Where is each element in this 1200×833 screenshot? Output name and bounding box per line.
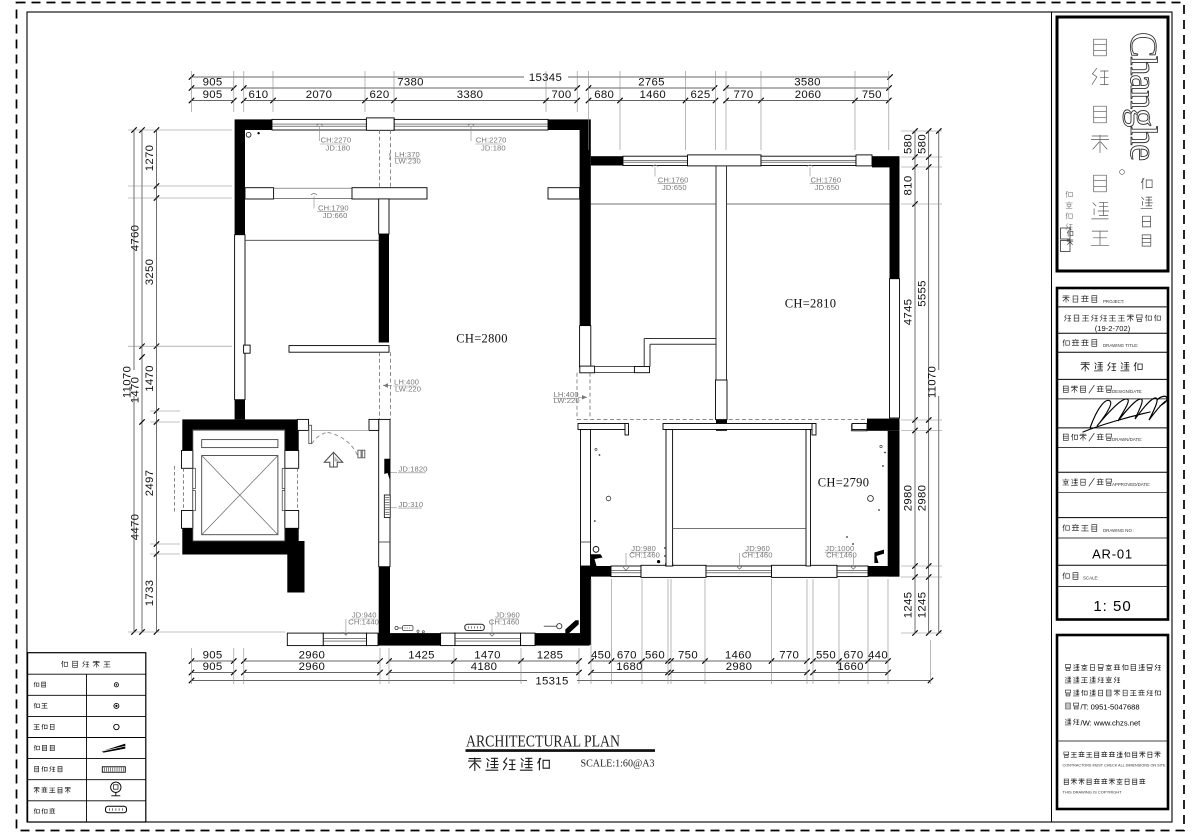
svg-text:1245: 1245 bbox=[916, 592, 928, 619]
svg-text:4180: 4180 bbox=[471, 661, 498, 673]
svg-text:CH:1460: CH:1460 bbox=[742, 551, 773, 560]
svg-text:1245: 1245 bbox=[903, 592, 915, 619]
svg-text:680: 680 bbox=[594, 89, 614, 101]
svg-text:5555: 5555 bbox=[916, 280, 928, 307]
svg-text:440: 440 bbox=[868, 649, 888, 661]
svg-text:3380: 3380 bbox=[457, 89, 484, 101]
svg-text:1733: 1733 bbox=[144, 580, 156, 607]
svg-text:1285: 1285 bbox=[537, 649, 564, 661]
svg-text:2960: 2960 bbox=[299, 649, 326, 661]
svg-text:1460: 1460 bbox=[725, 649, 752, 661]
svg-text:DRAWING NO :: DRAWING NO : bbox=[1103, 528, 1134, 533]
svg-text:Changhe: Changhe bbox=[1122, 32, 1164, 160]
svg-text:DRAWING TITLE:: DRAWING TITLE: bbox=[1103, 343, 1138, 348]
svg-text:905: 905 bbox=[203, 77, 223, 89]
svg-text:905: 905 bbox=[203, 649, 223, 661]
svg-text:LW:230: LW:230 bbox=[395, 157, 421, 166]
svg-text:/T: 0951-5047688: /T: 0951-5047688 bbox=[1081, 703, 1140, 712]
svg-text:2980: 2980 bbox=[916, 485, 928, 512]
svg-text:810: 810 bbox=[903, 176, 915, 196]
svg-text:4470: 4470 bbox=[130, 514, 142, 541]
svg-text:1660: 1660 bbox=[837, 661, 864, 673]
svg-text:CH:1460: CH:1460 bbox=[629, 551, 660, 560]
svg-text:3580: 3580 bbox=[794, 77, 821, 89]
svg-text:2980: 2980 bbox=[726, 661, 753, 673]
svg-text:(19-2-702): (19-2-702) bbox=[1095, 324, 1131, 333]
svg-text:1270: 1270 bbox=[144, 145, 156, 172]
svg-text:LW:220: LW:220 bbox=[554, 396, 580, 405]
svg-text:2980: 2980 bbox=[903, 485, 915, 512]
svg-text:CONTRACTORS MUST CHECK ALL DIM: CONTRACTORS MUST CHECK ALL DIMENSIONS ON… bbox=[1063, 763, 1166, 768]
svg-text:11070: 11070 bbox=[927, 366, 939, 398]
svg-text:15315: 15315 bbox=[535, 675, 568, 687]
svg-text:THIS DRAWING IS COPYRIGHT: THIS DRAWING IS COPYRIGHT bbox=[1063, 790, 1123, 795]
svg-text:1425: 1425 bbox=[408, 649, 435, 661]
svg-text:2960: 2960 bbox=[299, 661, 326, 673]
svg-text:1470: 1470 bbox=[474, 649, 501, 661]
svg-text:4760: 4760 bbox=[130, 225, 142, 252]
svg-text:450: 450 bbox=[591, 649, 611, 661]
svg-text:CH:1460: CH:1460 bbox=[489, 617, 520, 626]
svg-text:CH=2800: CH=2800 bbox=[456, 332, 508, 346]
svg-text:CH:1460: CH:1460 bbox=[826, 551, 857, 560]
svg-text:2497: 2497 bbox=[144, 470, 156, 497]
svg-text:750: 750 bbox=[862, 89, 882, 101]
svg-text:2765: 2765 bbox=[638, 77, 665, 89]
svg-text:670: 670 bbox=[844, 649, 864, 661]
svg-text:700: 700 bbox=[552, 89, 572, 101]
svg-text:4745: 4745 bbox=[903, 299, 915, 326]
svg-text:JD:180: JD:180 bbox=[326, 143, 351, 152]
svg-text:ARCHITECTURAL PLAN: ARCHITECTURAL PLAN bbox=[466, 731, 620, 750]
svg-text:7380: 7380 bbox=[397, 77, 424, 89]
svg-text:LW:220: LW:220 bbox=[395, 385, 421, 394]
svg-text:JD:650: JD:650 bbox=[662, 183, 687, 192]
svg-text:560: 560 bbox=[645, 649, 665, 661]
svg-text:/W: www.chzs.net: /W: www.chzs.net bbox=[1081, 719, 1142, 728]
svg-text:CH=2790: CH=2790 bbox=[818, 476, 870, 490]
svg-text:CH=2810: CH=2810 bbox=[785, 297, 837, 311]
svg-text:2070: 2070 bbox=[306, 89, 333, 101]
svg-text:DRAWN/DATE:: DRAWN/DATE: bbox=[1112, 437, 1142, 442]
svg-text:905: 905 bbox=[203, 661, 223, 673]
svg-text:PROJECT:: PROJECT: bbox=[1103, 299, 1124, 304]
svg-text:1: 50: 1: 50 bbox=[1093, 598, 1131, 615]
svg-text:1470: 1470 bbox=[144, 365, 156, 392]
svg-text:670: 670 bbox=[617, 649, 637, 661]
svg-text:JD:310: JD:310 bbox=[399, 500, 424, 509]
svg-text:CH:1440: CH:1440 bbox=[348, 618, 379, 627]
svg-text:JD:660: JD:660 bbox=[323, 211, 348, 220]
svg-text:1680: 1680 bbox=[616, 661, 643, 673]
svg-text:905: 905 bbox=[203, 89, 223, 101]
svg-text:15345: 15345 bbox=[529, 72, 562, 84]
svg-text:JD:180: JD:180 bbox=[481, 143, 506, 152]
svg-text:JD:1820: JD:1820 bbox=[399, 465, 428, 474]
svg-text:620: 620 bbox=[370, 89, 390, 101]
svg-text:AR-01: AR-01 bbox=[1092, 547, 1133, 562]
svg-text:DESIGN/DATE:: DESIGN/DATE: bbox=[1112, 389, 1143, 394]
svg-text:750: 750 bbox=[678, 649, 698, 661]
svg-text:APPROVED/DATE:: APPROVED/DATE: bbox=[1112, 482, 1150, 487]
svg-text:SCALE:: SCALE: bbox=[1083, 576, 1099, 581]
svg-text:11070: 11070 bbox=[122, 366, 134, 398]
svg-text:770: 770 bbox=[779, 649, 799, 661]
svg-text:SCALE:1:60@A3: SCALE:1:60@A3 bbox=[581, 758, 655, 770]
svg-text:3250: 3250 bbox=[144, 259, 156, 286]
svg-text:580: 580 bbox=[903, 134, 915, 154]
svg-text:770: 770 bbox=[734, 89, 754, 101]
svg-text:2060: 2060 bbox=[795, 89, 822, 101]
svg-text:JD:650: JD:650 bbox=[815, 183, 840, 192]
svg-text:1460: 1460 bbox=[640, 89, 667, 101]
svg-text:580: 580 bbox=[916, 134, 928, 154]
svg-text:625: 625 bbox=[691, 89, 711, 101]
svg-text:550: 550 bbox=[816, 649, 836, 661]
svg-text:610: 610 bbox=[248, 89, 268, 101]
